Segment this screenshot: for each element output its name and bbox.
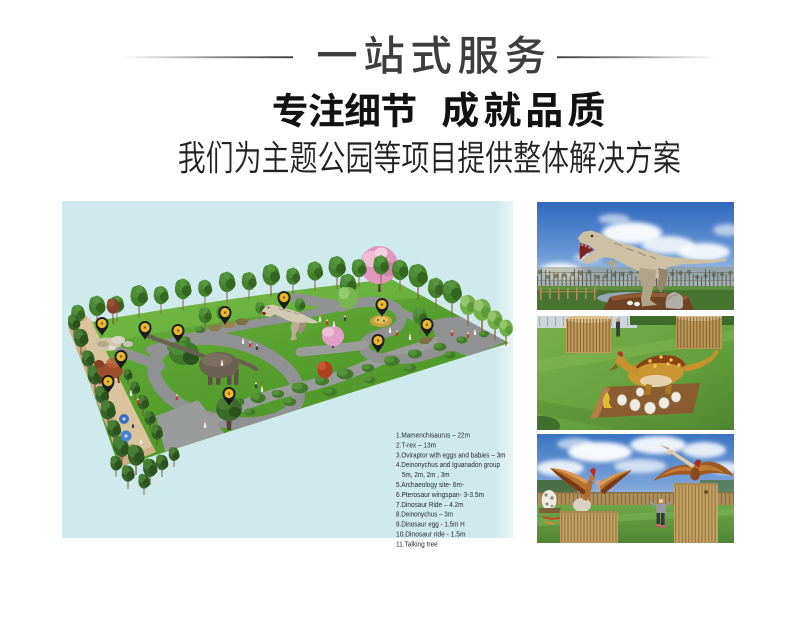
svg-text:3.Oviraptor with eggs and babi: 3.Oviraptor with eggs and babies – 3m [396,450,506,459]
svg-text:7.Dinosaur Ride – 4.2m: 7.Dinosaur Ride – 4.2m [396,500,464,509]
svg-text:9.Dinosaur egg - 1.5m H: 9.Dinosaur egg - 1.5m H [396,520,465,529]
svg-text:10.Dinosaur ride - 1.5m: 10.Dinosaur ride - 1.5m [396,530,466,539]
svg-text:5m, 2m, 2m , 3m: 5m, 2m, 2m , 3m [402,470,450,479]
svg-text:6.Pterosaur wingspan- 3-3.5m: 6.Pterosaur wingspan- 3-3.5m [396,490,484,499]
svg-text:11.Talking tree: 11.Talking tree [396,539,438,548]
svg-text:4.Deinonychus and Iguanadon gr: 4.Deinonychus and Iguanadon group [396,460,500,469]
svg-text:1.Mamenchisaurus – 22m: 1.Mamenchisaurus – 22m [396,431,470,440]
svg-text:2.T-rex – 13m: 2.T-rex – 13m [396,440,436,449]
svg-text:8.Deinonychus – 3m: 8.Deinonychus – 3m [396,510,453,519]
svg-text:5.Archaeology site- 6m-: 5.Archaeology site- 6m- [396,480,464,489]
